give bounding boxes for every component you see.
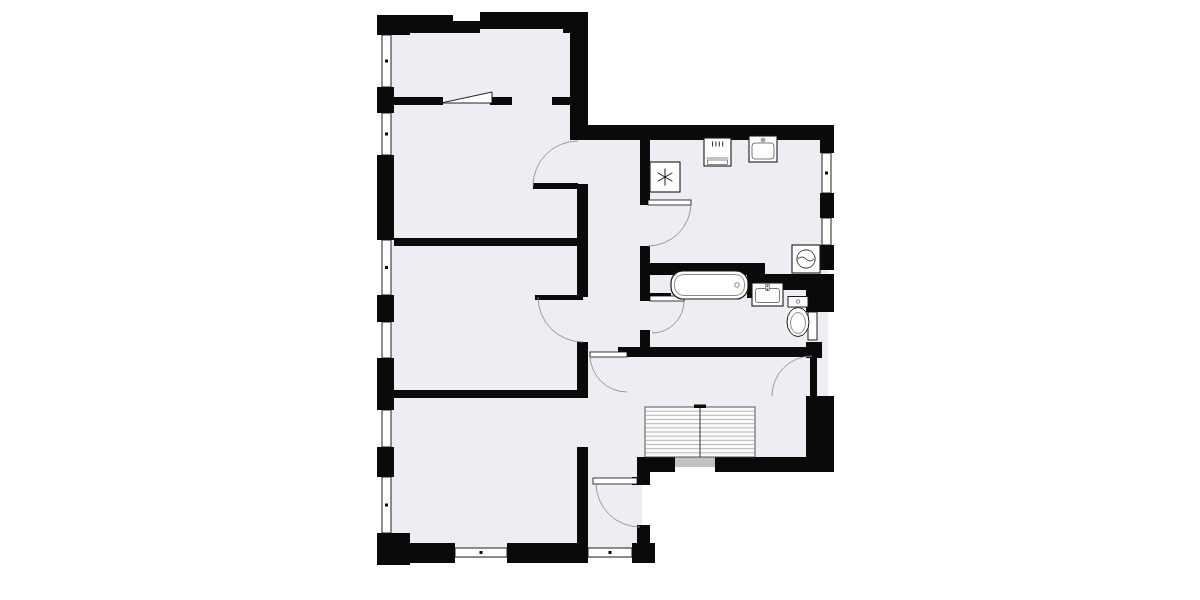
wall xyxy=(618,347,808,357)
window-symbol xyxy=(822,218,831,245)
room-floor xyxy=(584,440,642,558)
faucet-icon xyxy=(767,288,769,290)
wall xyxy=(570,15,588,140)
window-symbol xyxy=(382,410,391,447)
wall xyxy=(577,184,588,297)
window-tick xyxy=(385,266,388,269)
staircase xyxy=(645,405,755,458)
wall xyxy=(507,543,588,563)
bathroom-sink-icon xyxy=(752,283,783,306)
wall xyxy=(377,447,394,477)
wall xyxy=(480,12,563,29)
door-leaf xyxy=(648,200,691,205)
window-symbol xyxy=(382,322,391,358)
wall xyxy=(820,125,834,153)
wall xyxy=(552,97,570,105)
washing-machine-icon xyxy=(792,245,820,273)
stove-icon xyxy=(704,138,731,166)
wall xyxy=(715,457,812,472)
stove-drawer xyxy=(708,160,728,165)
entrance-threshold xyxy=(675,457,715,467)
wall xyxy=(637,457,650,485)
wall xyxy=(394,238,587,246)
faucet-icon xyxy=(762,139,764,141)
door-leaf xyxy=(535,295,583,300)
wall xyxy=(453,21,480,33)
toilet-tank xyxy=(788,297,808,308)
window-symbol xyxy=(808,312,817,340)
window-tick xyxy=(609,551,612,554)
toilet-icon xyxy=(787,297,809,337)
wall xyxy=(820,193,834,218)
window-tick xyxy=(480,551,483,554)
wall xyxy=(637,525,650,563)
wall xyxy=(820,245,834,270)
door-leaf xyxy=(533,183,578,189)
wall xyxy=(577,447,588,553)
floor-plan-drawing xyxy=(0,0,1200,600)
sink-basin xyxy=(752,143,774,159)
snowflake-icon xyxy=(664,176,666,178)
wall xyxy=(490,97,512,105)
wall xyxy=(640,140,650,205)
door-leaf xyxy=(590,352,627,357)
floor-plan-canvas xyxy=(0,0,1200,600)
kitchen-sink-icon xyxy=(749,136,777,162)
wall xyxy=(577,342,588,398)
faucet-icon xyxy=(767,285,769,287)
wall xyxy=(394,390,588,398)
wall xyxy=(377,295,394,322)
wall xyxy=(377,15,410,35)
wall xyxy=(806,288,834,312)
door-leaf xyxy=(810,356,817,396)
door-leaf xyxy=(593,478,637,484)
window-tick xyxy=(385,504,388,507)
window-tick xyxy=(825,172,828,175)
wall xyxy=(377,358,394,410)
bathtub-outline xyxy=(671,271,748,299)
wall xyxy=(377,543,455,563)
wall xyxy=(806,342,822,358)
window-tick xyxy=(385,133,388,136)
window-tick xyxy=(385,60,388,63)
refrigerator-icon xyxy=(650,162,680,192)
stair-start-mark xyxy=(694,405,706,409)
wall xyxy=(388,97,443,105)
wall xyxy=(377,155,394,240)
bathtub-icon xyxy=(671,271,748,299)
